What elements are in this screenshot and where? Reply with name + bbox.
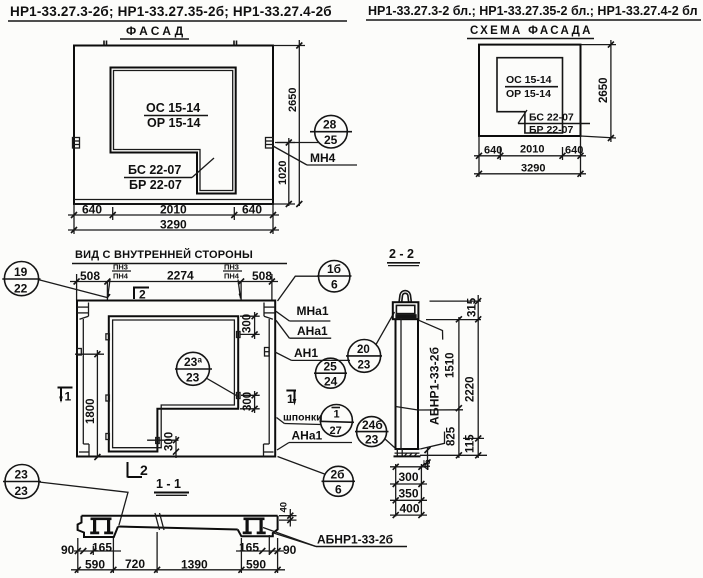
svg-text:АН1: АН1 — [294, 346, 318, 360]
svg-text:БС 22-07: БС 22-07 — [529, 112, 574, 124]
svg-text:115: 115 — [465, 434, 477, 453]
svg-text:90: 90 — [61, 543, 75, 557]
svg-text:2: 2 — [139, 288, 146, 302]
svg-text:1390: 1390 — [181, 558, 208, 572]
svg-text:720: 720 — [125, 557, 145, 571]
svg-text:640: 640 — [565, 145, 583, 157]
svg-text:2650: 2650 — [598, 77, 610, 103]
svg-text:315: 315 — [467, 297, 479, 317]
svg-text:3290: 3290 — [160, 218, 187, 232]
svg-text:АНа1: АНа1 — [297, 324, 328, 338]
svg-text:1510: 1510 — [445, 352, 457, 378]
svg-text:1800: 1800 — [85, 398, 97, 424]
svg-text:300: 300 — [399, 470, 419, 484]
svg-text:640: 640 — [484, 145, 502, 157]
svg-text:825: 825 — [446, 426, 458, 446]
svg-text:НР1-33.27.3-2б; НР1-33.27.35-2: НР1-33.27.3-2б; НР1-33.27.35-2б; НР1-33.… — [10, 4, 332, 19]
svg-text:508: 508 — [252, 269, 272, 283]
svg-text:шпонки: шпонки — [283, 412, 323, 424]
svg-text:МНа1: МНа1 — [297, 304, 329, 318]
svg-text:40: 40 — [279, 502, 290, 513]
svg-text:28: 28 — [323, 118, 337, 132]
svg-text:ОС 15-14: ОС 15-14 — [506, 74, 552, 86]
svg-text:19: 19 — [14, 265, 28, 279]
svg-text:АНа1: АНа1 — [292, 429, 323, 443]
svg-text:1: 1 — [287, 392, 294, 406]
svg-text:23: 23 — [15, 468, 29, 482]
svg-text:400: 400 — [400, 502, 420, 516]
svg-text:ПН3: ПН3 — [113, 263, 128, 272]
svg-text:25: 25 — [324, 360, 338, 374]
svg-text:2220: 2220 — [465, 376, 477, 402]
svg-text:23: 23 — [358, 360, 371, 372]
svg-text:ПН4: ПН4 — [113, 272, 129, 281]
svg-text:2650: 2650 — [287, 88, 299, 112]
svg-text:ОС 15-14: ОС 15-14 — [146, 101, 200, 115]
svg-text:АБНР1-33-2б: АБНР1-33-2б — [317, 533, 393, 547]
svg-text:22: 22 — [14, 282, 28, 296]
svg-text:1: 1 — [65, 390, 72, 404]
svg-text:23: 23 — [186, 371, 200, 385]
svg-text:590: 590 — [85, 558, 105, 572]
svg-text:23: 23 — [184, 355, 198, 369]
svg-text:508: 508 — [80, 269, 100, 283]
svg-text:165: 165 — [239, 541, 259, 555]
svg-text:590: 590 — [246, 558, 266, 572]
svg-text:24б: 24б — [362, 418, 383, 432]
svg-text:ПН3: ПН3 — [224, 263, 239, 272]
svg-text:а: а — [198, 356, 203, 365]
svg-text:300: 300 — [242, 392, 254, 411]
svg-text:МН4: МН4 — [310, 151, 336, 165]
svg-text:20: 20 — [357, 344, 370, 356]
svg-text:ФАСАД: ФАСАД — [126, 24, 186, 38]
svg-text:СХЕМА ФАСАДА: СХЕМА ФАСАДА — [470, 25, 593, 37]
svg-text:АБНР1-33-2б: АБНР1-33-2б — [428, 347, 442, 425]
svg-text:23: 23 — [365, 433, 379, 447]
svg-text:БС 22-07: БС 22-07 — [128, 163, 181, 177]
svg-text:350: 350 — [399, 487, 419, 501]
svg-text:24: 24 — [324, 375, 338, 389]
svg-text:1020: 1020 — [277, 161, 289, 185]
svg-text:6: 6 — [335, 483, 342, 497]
svg-text:3290: 3290 — [521, 163, 545, 175]
svg-text:1 - 1: 1 - 1 — [156, 477, 181, 491]
svg-text:1: 1 — [334, 409, 340, 421]
svg-text:БР 22-07: БР 22-07 — [129, 178, 182, 192]
svg-text:23: 23 — [15, 484, 29, 498]
svg-text:27: 27 — [330, 425, 342, 437]
svg-text:300: 300 — [242, 314, 254, 333]
svg-text:НР1-33.27.3-2 бл.; НР1-33.27.3: НР1-33.27.3-2 бл.; НР1-33.27.35-2 бл.; Н… — [368, 4, 698, 18]
svg-text:300: 300 — [164, 432, 176, 451]
svg-text:1б: 1б — [327, 262, 341, 276]
svg-text:2: 2 — [140, 462, 148, 478]
svg-text:25: 25 — [324, 133, 338, 147]
svg-text:ПН4: ПН4 — [224, 272, 240, 281]
svg-text:6: 6 — [331, 278, 338, 292]
svg-text:ОР 15-14: ОР 15-14 — [506, 88, 551, 100]
svg-text:2б: 2б — [331, 468, 345, 482]
svg-text:2 - 2: 2 - 2 — [389, 247, 414, 261]
svg-text:БР 22-07: БР 22-07 — [529, 124, 573, 136]
svg-text:90: 90 — [283, 543, 297, 557]
svg-text:2010: 2010 — [520, 144, 544, 156]
svg-text:ОР 15-14: ОР 15-14 — [147, 116, 201, 130]
svg-text:ВИД С ВНУТРЕННЕЙ СТОРОНЫ: ВИД С ВНУТРЕННЕЙ СТОРОНЫ — [75, 248, 253, 261]
svg-text:2274: 2274 — [167, 269, 194, 283]
svg-text:165: 165 — [92, 541, 112, 555]
